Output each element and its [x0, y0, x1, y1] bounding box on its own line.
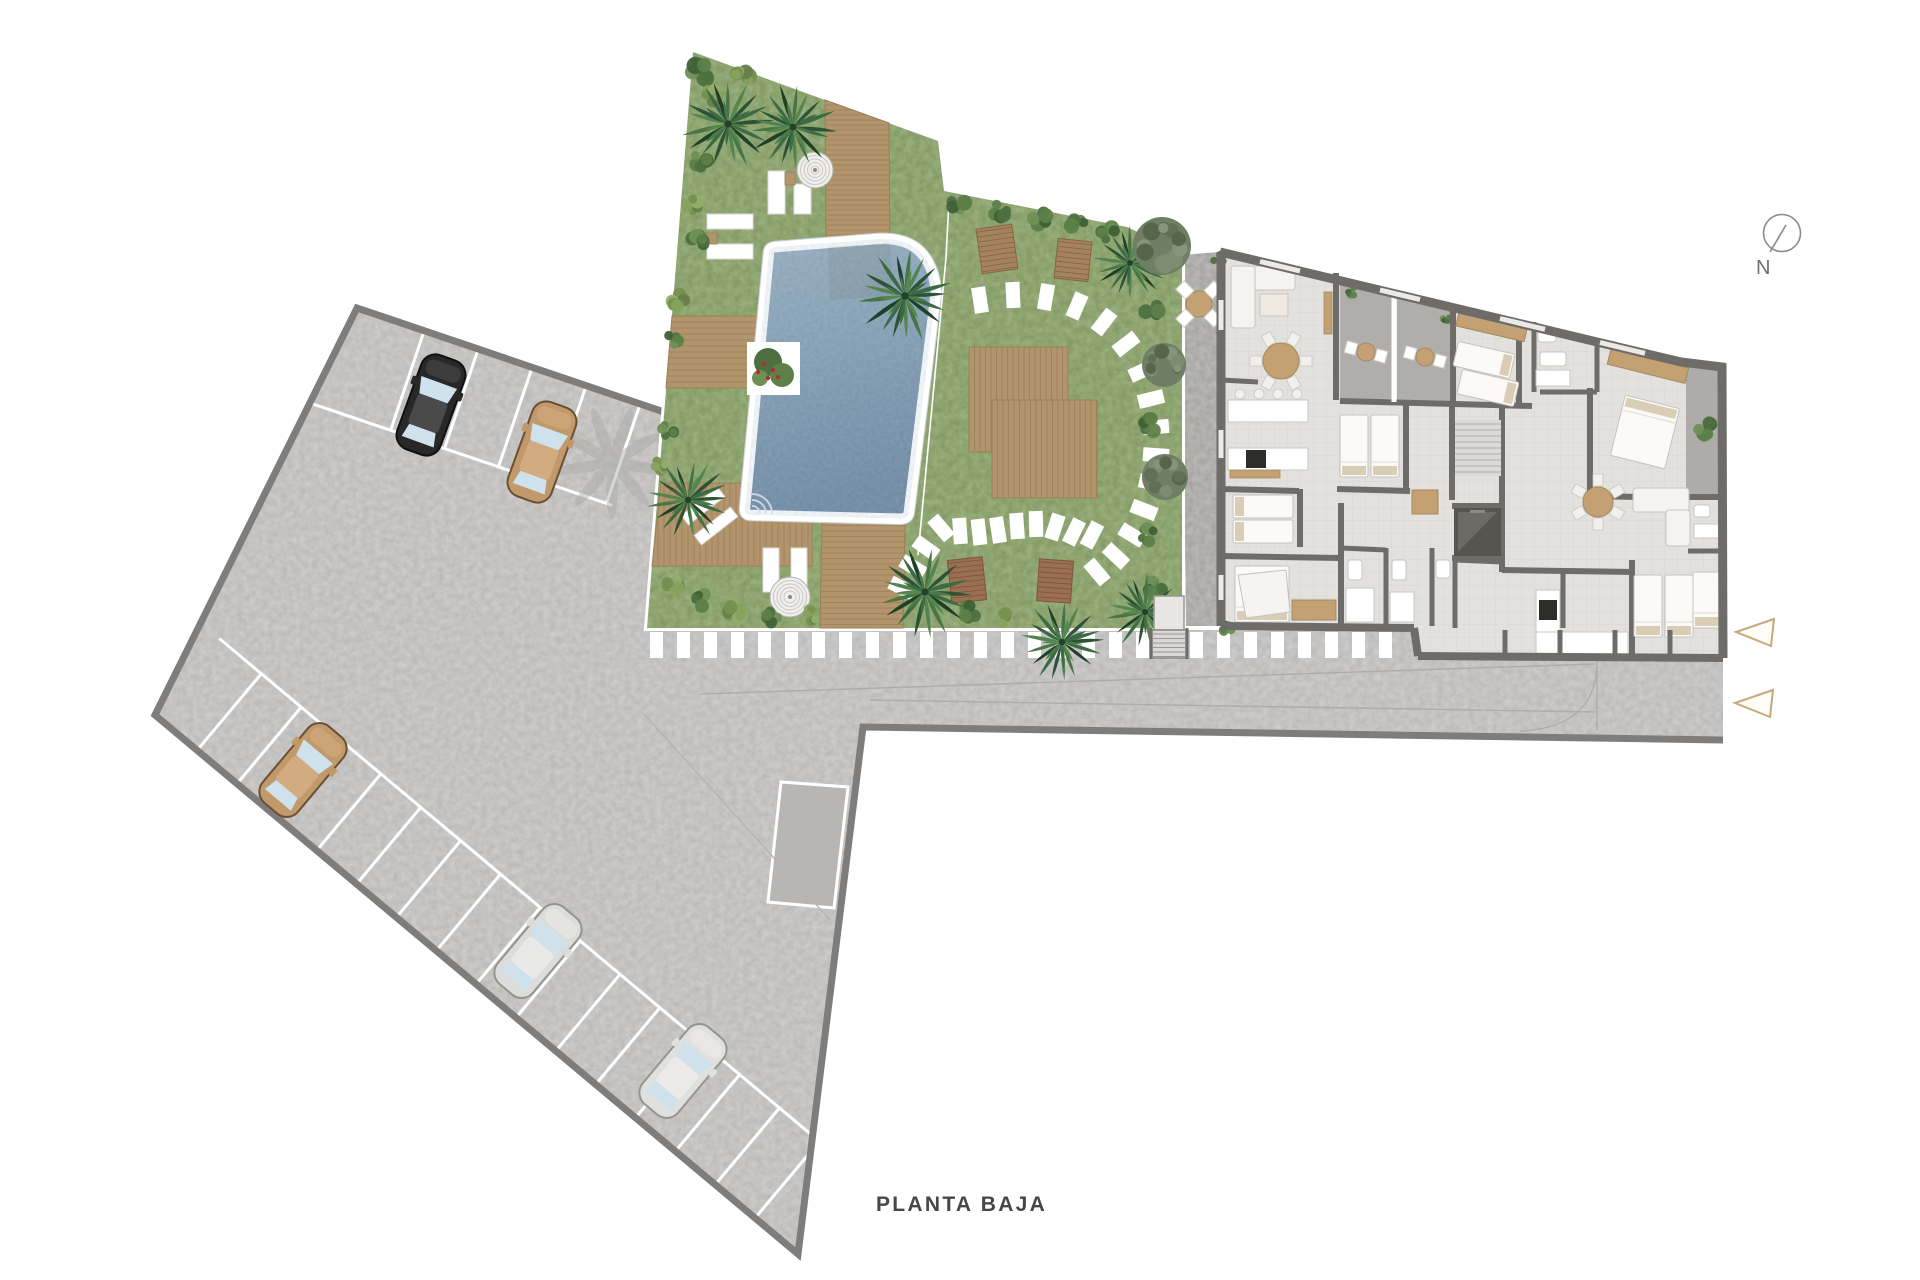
svg-text:N: N: [1756, 257, 1770, 279]
svg-text:PLANTA BAJA: PLANTA BAJA: [876, 1193, 1047, 1216]
